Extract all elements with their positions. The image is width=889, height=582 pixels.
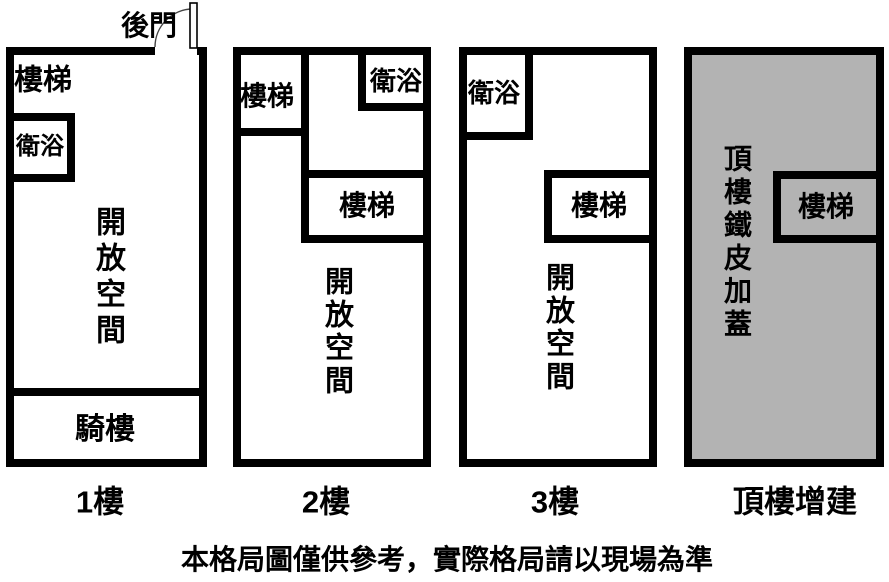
wall — [544, 235, 657, 243]
stairs-label: 樓梯 — [14, 67, 72, 96]
back-door-label: 後門 — [121, 12, 177, 40]
wall — [544, 170, 552, 243]
arcade-label: 騎樓 — [75, 415, 135, 445]
stairs-label: 樓梯 — [339, 192, 395, 220]
wall — [6, 388, 207, 396]
wall — [773, 171, 884, 179]
bathroom-label: 衛浴 — [370, 68, 422, 94]
wall — [773, 235, 884, 243]
floor-2-caption: 2樓 — [302, 487, 350, 518]
wall — [358, 103, 431, 111]
bathroom-label: 衛浴 — [16, 135, 64, 159]
wall — [301, 170, 431, 178]
floor-1-caption: 1樓 — [76, 487, 124, 518]
wall — [233, 128, 309, 136]
stairs-label: 樓梯 — [571, 192, 627, 220]
floor-3-caption: 3樓 — [531, 487, 579, 518]
wall — [773, 171, 781, 243]
wall — [459, 132, 533, 140]
wall — [544, 170, 657, 178]
floor-3-panel — [459, 47, 657, 467]
rooftop-caption: 頂樓增建 — [733, 487, 857, 518]
stairs-label: 樓梯 — [798, 193, 854, 221]
wall — [301, 47, 309, 243]
floor-plan-diagram: 後門 樓梯 衛浴 開放空間 騎樓 樓梯 衛浴 樓梯 開放空間 衛浴 樓梯 開放空… — [0, 0, 889, 582]
rooftop-area-label: 頂樓鐵皮加蓋 — [722, 144, 750, 342]
wall — [525, 47, 533, 140]
open-space-label: 開放空間 — [543, 262, 572, 394]
open-space-label: 開放空間 — [322, 266, 351, 398]
disclaimer-text: 本格局圖僅供參考，實際格局請以現場為準 — [181, 546, 713, 574]
wall — [301, 235, 431, 243]
rooftop-panel — [684, 47, 884, 467]
stairs-label: 樓梯 — [240, 84, 294, 111]
wall — [358, 47, 366, 111]
bathroom-label: 衛浴 — [468, 80, 520, 106]
open-space-label: 開放空間 — [92, 206, 122, 350]
